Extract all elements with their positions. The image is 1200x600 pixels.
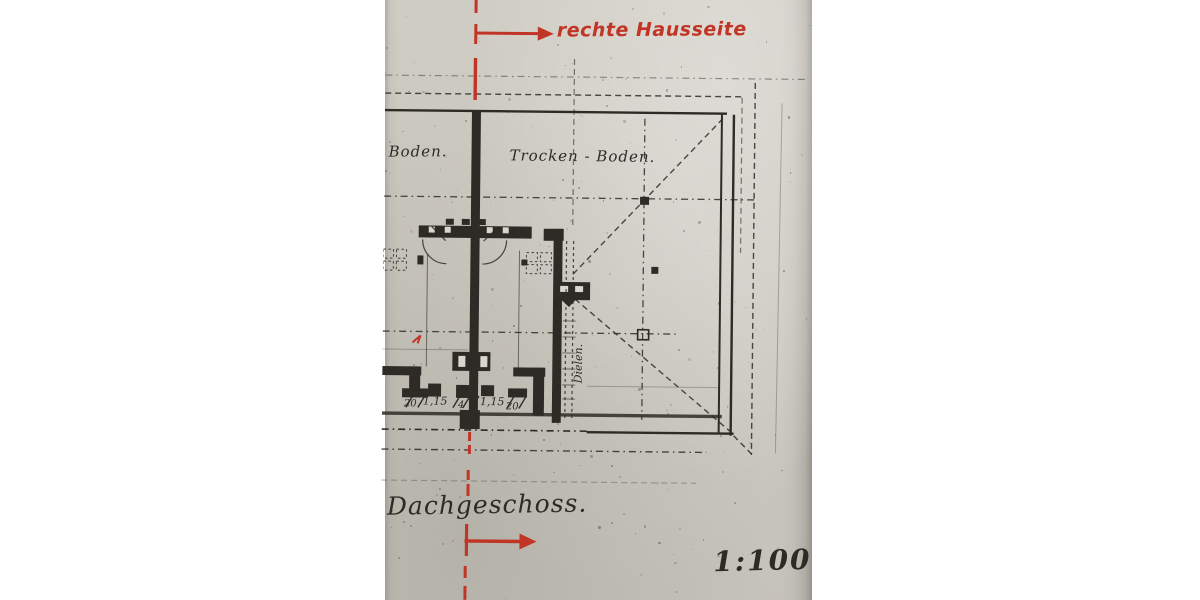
red-arrow-bottom — [464, 533, 536, 550]
drawing-content: Boden. Trocken - Boden. Dielen. Dachgesc… — [380, 0, 813, 600]
label-dielen: Dielen. — [572, 340, 586, 388]
dimension-value: 4 — [458, 400, 464, 411]
party-wall — [460, 110, 483, 429]
dimension-value: 1,15 — [423, 394, 448, 407]
flue-boxes — [383, 249, 551, 274]
dimension-value: 20 — [506, 401, 519, 412]
red-check-mark — [413, 335, 421, 343]
apartment-walls — [417, 218, 564, 368]
staircase — [552, 229, 591, 423]
floor-title: Dachgeschoss. — [387, 489, 588, 521]
label-boden: Boden. — [389, 142, 448, 160]
speckle — [810, 381, 811, 382]
drawing-photo: Boden. Trocken - Boden. Dielen. Dachgesc… — [385, 0, 812, 600]
scale-label: 1:100 — [713, 543, 812, 578]
roof-overhang-lines — [381, 75, 808, 484]
label-trocken-boden: Trocken - Boden. — [509, 146, 655, 166]
red-house-side-label: rechte Hausseite — [557, 18, 747, 41]
dimension-value: 1,15 — [480, 395, 505, 408]
red-arrow-top — [475, 26, 554, 41]
letterbox-canvas: Boden. Trocken - Boden. Dielen. Dachgesc… — [0, 0, 1200, 600]
dimension-value: 20 — [404, 398, 417, 409]
